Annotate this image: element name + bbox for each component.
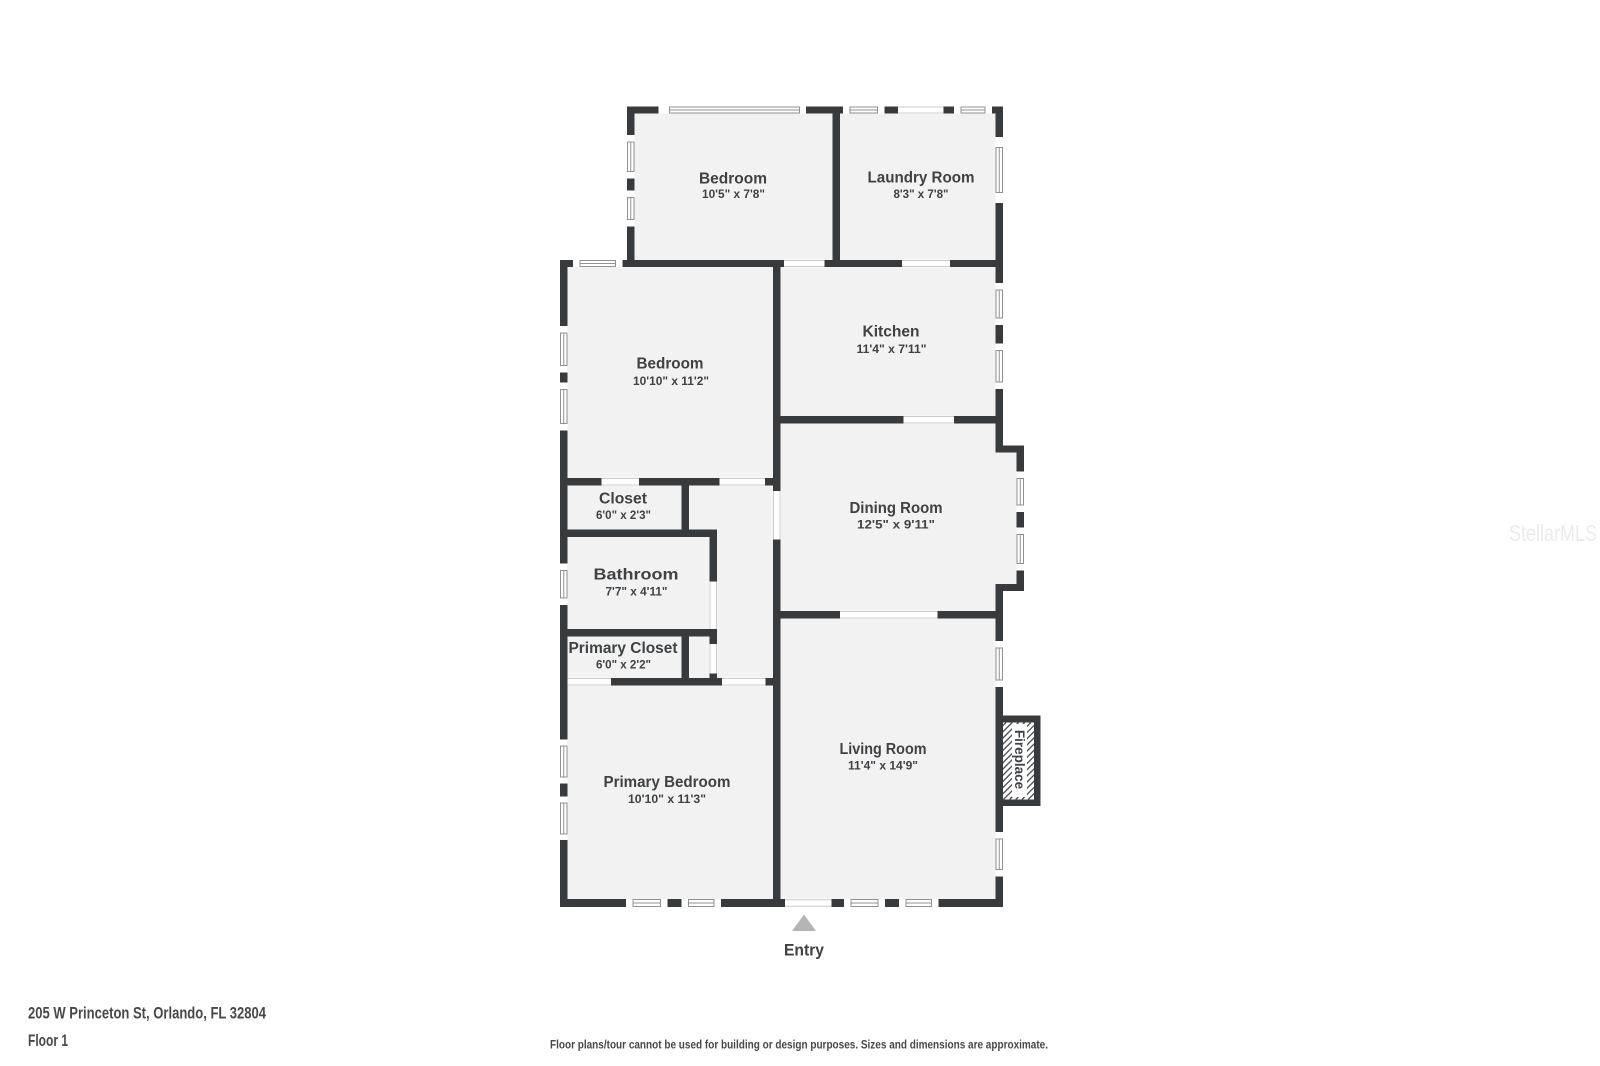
svg-text:Laundry Room: Laundry Room xyxy=(868,170,975,187)
svg-text:Kitchen: Kitchen xyxy=(863,324,920,341)
svg-text:Floor 1: Floor 1 xyxy=(28,1032,68,1050)
svg-text:11'4" x 7'11": 11'4" x 7'11" xyxy=(857,342,927,356)
svg-text:StellarMLS: StellarMLS xyxy=(1509,520,1597,546)
svg-text:10'5" x 7'8": 10'5" x 7'8" xyxy=(702,187,765,201)
svg-text:6'0" x 2'2": 6'0" x 2'2" xyxy=(596,658,651,672)
svg-text:10'10" x 11'3": 10'10" x 11'3" xyxy=(628,792,706,806)
svg-text:6'0" x 2'3": 6'0" x 2'3" xyxy=(596,508,651,522)
svg-text:Closet: Closet xyxy=(599,491,647,508)
svg-text:11'4" x 14'9": 11'4" x 14'9" xyxy=(848,759,918,773)
svg-text:Dining Room: Dining Room xyxy=(850,500,943,517)
svg-text:12'5" x 9'11": 12'5" x 9'11" xyxy=(857,518,935,532)
svg-text:Bedroom: Bedroom xyxy=(699,171,767,188)
svg-text:Primary Closet: Primary Closet xyxy=(569,640,678,657)
svg-text:10'10" x 11'2": 10'10" x 11'2" xyxy=(633,374,709,388)
svg-text:205 W Princeton St, Orlando, F: 205 W Princeton St, Orlando, FL 32804 xyxy=(28,1005,267,1023)
svg-text:Living Room: Living Room xyxy=(840,741,927,758)
svg-text:Floor plans/tour cannot be use: Floor plans/tour cannot be used for buil… xyxy=(550,1038,1048,1052)
svg-text:8'3" x 7'8": 8'3" x 7'8" xyxy=(894,187,949,201)
svg-text:Bathroom: Bathroom xyxy=(594,567,679,584)
svg-text:Fireplace: Fireplace xyxy=(1012,730,1027,790)
svg-text:Entry: Entry xyxy=(784,942,825,960)
svg-text:Bedroom: Bedroom xyxy=(637,356,704,373)
svg-text:Primary Bedroom: Primary Bedroom xyxy=(604,774,731,791)
svg-text:7'7" x 4'11": 7'7" x 4'11" xyxy=(606,585,668,599)
